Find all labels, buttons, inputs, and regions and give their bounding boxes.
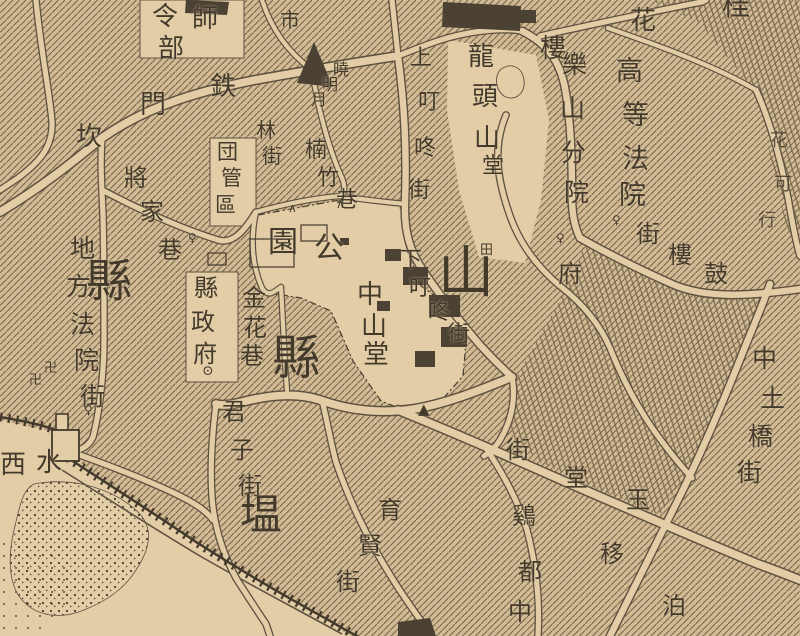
label-right-edge: 花 bbox=[770, 132, 788, 150]
label-leshanfenyuan: 院 bbox=[564, 180, 589, 205]
label-guloujie: 樓 bbox=[668, 243, 692, 267]
label-tiemenkan: 門 bbox=[140, 92, 166, 118]
label-junzijie: 子 bbox=[230, 438, 254, 462]
label-leshanfenyuan: 分 bbox=[561, 140, 586, 165]
label-gongyuan: 園 bbox=[268, 228, 298, 258]
label-xiaomingyue: 月 bbox=[311, 92, 327, 108]
label-yi: 移 bbox=[600, 542, 624, 566]
label-jiangjiaxiang: 將 bbox=[124, 166, 148, 190]
label-xiadingdongjie: 咚 bbox=[428, 302, 450, 324]
label-longtoushan: 山 bbox=[474, 126, 500, 152]
label-zhongshantang: 山 bbox=[361, 314, 387, 340]
label-jinhuaxiang: 花 bbox=[243, 316, 267, 340]
label-duzhong: 中 bbox=[508, 600, 532, 624]
label-linjie: 街 bbox=[262, 146, 282, 166]
label-hua: 花 bbox=[630, 8, 656, 34]
sym-shrine-3: ♀ bbox=[84, 404, 93, 416]
sym-field: 田 bbox=[480, 244, 493, 257]
barracks-annex bbox=[520, 10, 536, 23]
label-xiadingdongjie: 街 bbox=[448, 324, 470, 346]
label-jiangjiaxiang: 巷 bbox=[158, 238, 182, 262]
label-difangfayuanjie: 院 bbox=[74, 348, 99, 373]
label-shangdingdongjie: 咚 bbox=[414, 138, 436, 160]
label-lingbu: 部 bbox=[158, 36, 184, 62]
label-zhongtuqiaojie: 街 bbox=[737, 460, 762, 485]
sym-swastika-2: 卍 bbox=[29, 374, 42, 387]
label-tuanguanqu: 區 bbox=[215, 195, 236, 216]
label-shangdingdongjie: 街 bbox=[408, 180, 430, 202]
label-tang: 堂 bbox=[482, 156, 504, 178]
label-longtoushan: 頭 bbox=[472, 84, 498, 110]
sym-caret-1: ∧ bbox=[288, 202, 297, 214]
label-gaodengfayuan: 等 bbox=[622, 102, 649, 129]
label-shuiximen: 水 bbox=[36, 450, 62, 476]
label-tuanguanqu: 管 bbox=[221, 168, 242, 189]
label-nanzhuxiang: 楠 bbox=[305, 140, 327, 162]
label-gaodengfayuan: 高 bbox=[616, 58, 643, 85]
label-gaodengfayuan: 院 bbox=[619, 182, 646, 209]
label-jinhuaxiang: 巷 bbox=[240, 344, 264, 368]
label-gongyuan: 公 bbox=[314, 234, 344, 264]
label-xianzhengfu: 政 bbox=[191, 310, 215, 334]
label-ji: 鷄 bbox=[512, 504, 536, 528]
historical-map-canvas: 師令部市鉄門坎曉明月林街団管區楠竹巷上叮咚街將家巷龍頭山堂花樓桂高等法院樂山分院… bbox=[0, 0, 800, 636]
label-shangdingdongjie: 叮 bbox=[418, 92, 440, 114]
sym-shrine-4: ♀ bbox=[188, 232, 197, 244]
label-xianzhengfu: 縣 bbox=[194, 276, 218, 300]
label-leshanfenyuan: 樂 bbox=[562, 52, 587, 77]
label-tiemenkan: 鉄 bbox=[210, 74, 236, 100]
label-yuxianjie: 街 bbox=[336, 570, 360, 594]
label-shangdingdongjie: 上 bbox=[410, 48, 432, 70]
label-fu: 府 bbox=[558, 262, 582, 286]
label-shichang: 市 bbox=[280, 10, 300, 30]
label-jiangjiaxiang: 家 bbox=[140, 200, 164, 224]
label-zhongtuqiaojie: 土 bbox=[760, 386, 785, 411]
label-xian-big-mid: 縣 bbox=[272, 334, 320, 382]
label-shi-hq: 師 bbox=[192, 6, 218, 32]
park-building bbox=[415, 351, 435, 367]
sym-shrine-1: ♀ bbox=[612, 214, 621, 226]
label-linjie: 林 bbox=[256, 120, 276, 140]
label-gui: 桂 bbox=[722, 0, 750, 20]
label-xiadingdongjie: 下 bbox=[400, 250, 422, 272]
label-shuiximen: 西 bbox=[0, 452, 26, 478]
label-lingbu: 令 bbox=[152, 4, 178, 30]
label-bo: 泊 bbox=[662, 594, 686, 618]
label-junzijie: 君 bbox=[222, 400, 246, 424]
label-yutangjie: 街 bbox=[506, 438, 530, 462]
label-tuanguanqu: 団 bbox=[217, 142, 238, 163]
label-xiadingdongjie: 叮 bbox=[409, 278, 431, 300]
label-wen-big: 塭 bbox=[240, 494, 282, 536]
label-yuxianjie: 賢 bbox=[358, 534, 382, 558]
label-yutangjie: 堂 bbox=[564, 466, 588, 490]
label-longtoushan: 龍 bbox=[468, 44, 494, 70]
sym-caret-2: ∧ bbox=[336, 198, 345, 210]
label-zhongtuqiaojie: 中 bbox=[752, 346, 777, 371]
label-guloujie: 鼓 bbox=[704, 262, 728, 286]
label-nanzhuxiang: 竹 bbox=[317, 168, 339, 190]
label-right-edge: 行 bbox=[758, 212, 776, 230]
label-jinhuaxiang: 金 bbox=[242, 286, 266, 310]
label-tiemenkan: 坎 bbox=[76, 124, 102, 150]
barracks-building bbox=[442, 2, 521, 31]
sym-gov-circle: ⊙ bbox=[202, 364, 214, 378]
label-leshanfenyuan: 山 bbox=[560, 96, 585, 121]
park-building bbox=[385, 249, 401, 261]
sym-triangle-mark: ▲ bbox=[418, 402, 430, 417]
label-zhongtuqiaojie: 橋 bbox=[748, 424, 773, 449]
label-yutangjie: 玉 bbox=[626, 488, 650, 512]
label-zhongshantang: 中 bbox=[357, 282, 383, 308]
label-gaodengfayuan: 法 bbox=[622, 146, 649, 173]
label-duzhong: 都 bbox=[518, 560, 542, 584]
map-artwork bbox=[0, 0, 800, 636]
sym-shrine-2: ♀ bbox=[556, 232, 565, 244]
label-yuxianjie: 育 bbox=[378, 498, 402, 522]
label-right-edge: 可 bbox=[774, 176, 792, 194]
label-zhongshantang: 堂 bbox=[363, 342, 389, 368]
label-difangfayuanjie: 法 bbox=[70, 312, 95, 337]
label-guloujie: 街 bbox=[636, 222, 660, 246]
sym-swastika-1: 卍 bbox=[44, 362, 57, 375]
label-xian-big-left: 縣 bbox=[86, 258, 132, 304]
